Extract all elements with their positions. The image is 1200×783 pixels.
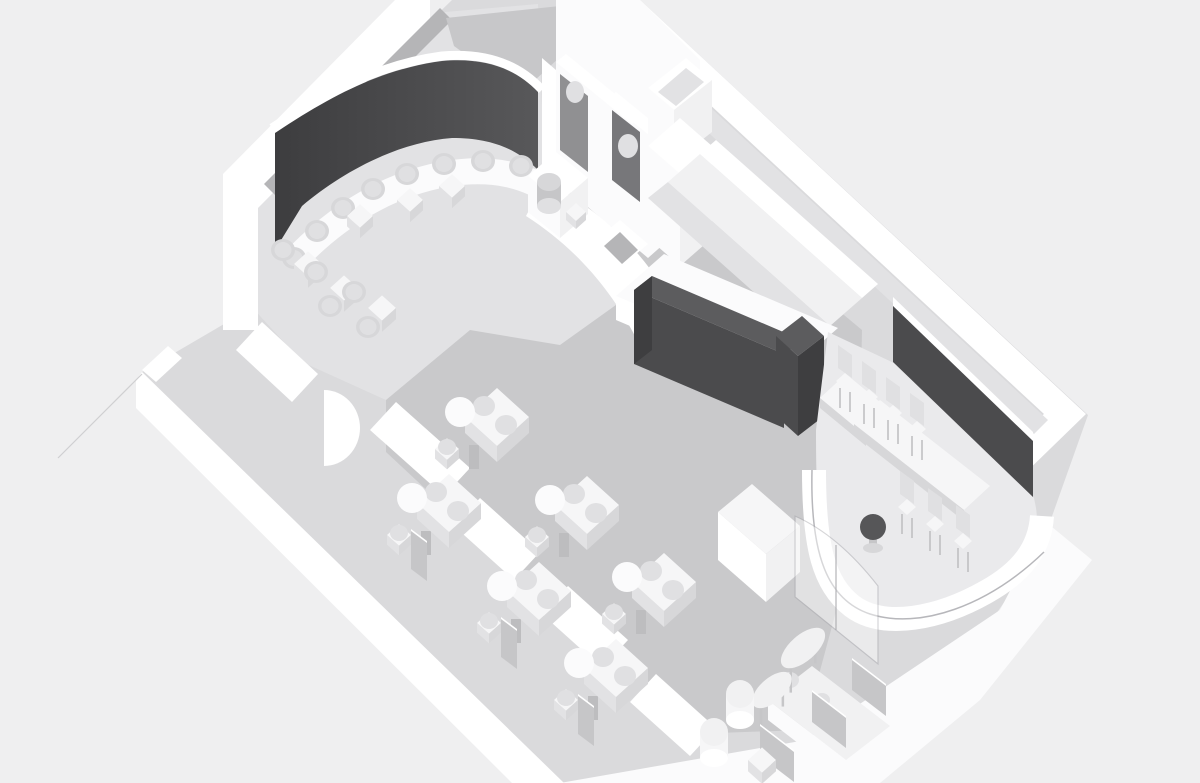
sofa-back-cap xyxy=(634,276,652,364)
dining-clusters-2-table-1-roundback-chair xyxy=(612,562,642,592)
booth-round-chair-2-back xyxy=(700,718,728,746)
dining-clusters-2-table-1-leg xyxy=(636,610,646,634)
coffee-machine-top xyxy=(537,173,561,191)
dining-clusters-2-table-2-roundback-chair xyxy=(564,648,594,678)
bar-stools-7-cushion xyxy=(513,158,530,174)
lower-bar-stools-3-cushion xyxy=(322,298,339,314)
dining-clusters-0-table-2-plate-2 xyxy=(447,501,469,521)
wc-fixture-2 xyxy=(618,134,638,158)
dining-clusters-2-table-1-plate-2 xyxy=(662,580,684,600)
round-table-dark-top xyxy=(860,514,886,540)
dining-clusters-2-table-1-chair-cushion xyxy=(605,604,623,620)
isometric-cafe-floorplan xyxy=(0,0,1200,783)
dining-clusters-1-table-2-plate-1 xyxy=(515,570,537,590)
dining-clusters-1-table-1-roundback-chair xyxy=(535,485,565,515)
dining-clusters-0-table-2-plate-1 xyxy=(425,482,447,502)
booth-round-chair-1-back xyxy=(726,680,754,708)
dining-clusters-2-table-2-plate-2 xyxy=(614,666,636,686)
dining-clusters-1-table-1-leg xyxy=(559,533,569,557)
dining-clusters-2-table-2-plate-1 xyxy=(592,647,614,667)
dining-clusters-1-table-2-plate-2 xyxy=(537,589,559,609)
dining-clusters-0-table-1-chair-cushion xyxy=(438,439,456,455)
lower-bar-stools-1-cushion xyxy=(308,264,325,280)
dining-clusters-1-table-1-plate-2 xyxy=(585,503,607,523)
bar-stools-3-cushion xyxy=(365,181,382,197)
dining-clusters-1-table-2-roundback-chair xyxy=(487,571,517,601)
lower-bar-stools-0-cushion xyxy=(275,242,292,258)
dining-clusters-1-table-2-chair-cushion xyxy=(480,613,498,629)
lower-bar-stools-4-cushion xyxy=(360,319,377,335)
dining-clusters-2-table-1-plate-1 xyxy=(640,561,662,581)
lower-bar-stools-2-cushion xyxy=(346,284,363,300)
booth-round-chair-2-base xyxy=(700,749,728,767)
scene-root xyxy=(0,0,1200,783)
dining-clusters-0-table-2-roundback-chair xyxy=(397,483,427,513)
bar-stools-2-cushion xyxy=(335,200,352,216)
dining-clusters-2-table-2-chair-cushion xyxy=(557,690,575,706)
booth-round-chair-1-base xyxy=(726,711,754,729)
round-table-base xyxy=(863,543,883,553)
bar-stools-6-cushion xyxy=(475,153,492,169)
coffee-machine-base xyxy=(537,198,561,214)
dining-clusters-1-table-1-plate-1 xyxy=(563,484,585,504)
dining-clusters-0-table-1-plate-1 xyxy=(473,396,495,416)
dining-clusters-0-table-1-roundback-chair xyxy=(445,397,475,427)
floorplan-rendering xyxy=(0,0,1200,783)
bar-stools-4-cushion xyxy=(399,166,416,182)
wc-fixture-1 xyxy=(566,81,584,103)
dining-clusters-1-table-1-chair-cushion xyxy=(528,527,546,543)
bar-stools-5-cushion xyxy=(436,156,453,172)
bar-stools-1-cushion xyxy=(309,223,326,239)
dining-clusters-0-table-2-chair-cushion xyxy=(390,525,408,541)
dining-clusters-0-table-1-leg xyxy=(469,445,479,469)
dining-clusters-0-table-1-plate-2 xyxy=(495,415,517,435)
